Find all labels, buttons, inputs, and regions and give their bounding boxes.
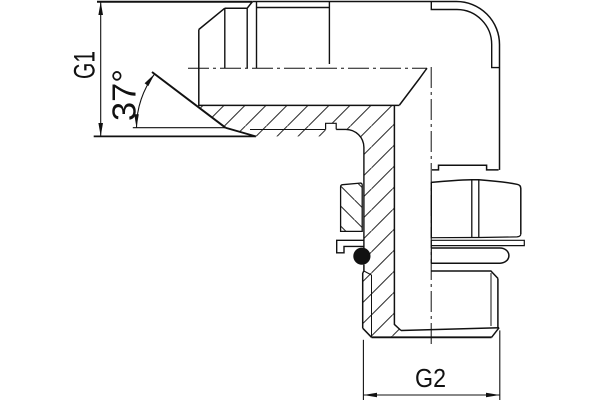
svg-text:G2: G2 xyxy=(415,363,446,393)
svg-text:37°: 37° xyxy=(106,69,143,121)
svg-text:G1: G1 xyxy=(69,51,102,79)
